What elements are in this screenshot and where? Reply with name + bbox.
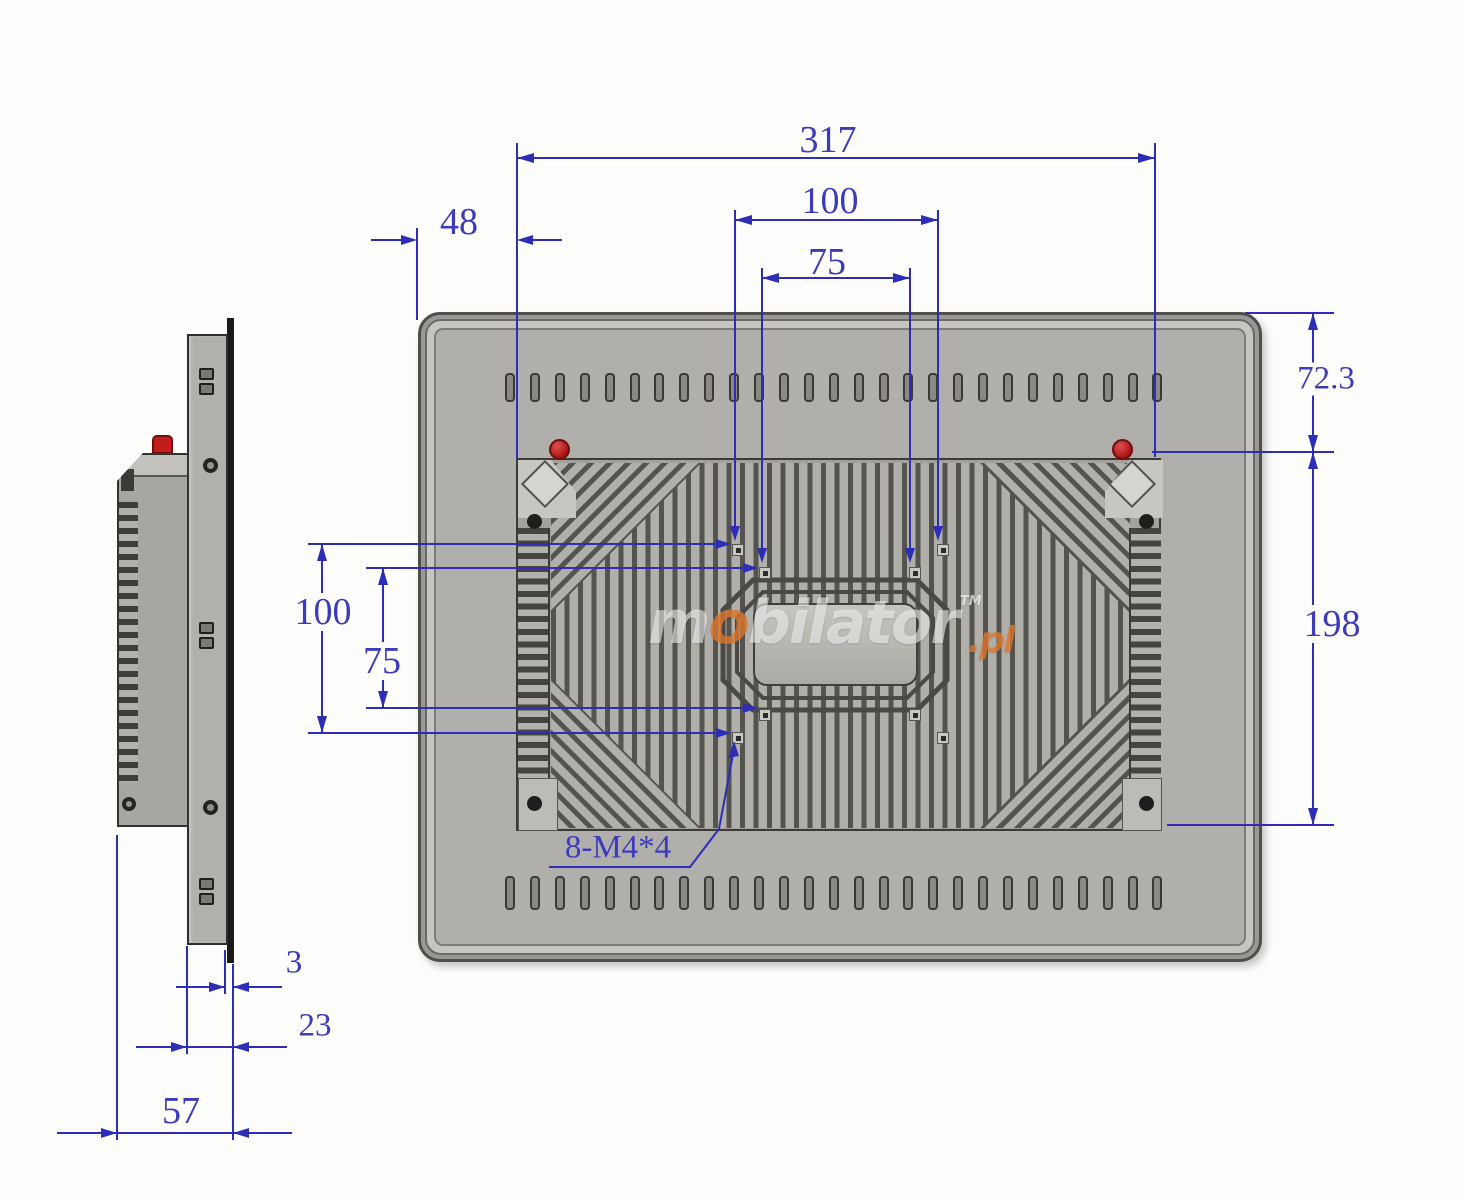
vesa-hole-100: [937, 732, 949, 744]
vent-slot: [630, 373, 640, 402]
dim-label-57: 57: [162, 1092, 200, 1130]
vent-slot: [779, 373, 789, 402]
mount-lug: [199, 893, 214, 905]
vesa-hole-75: [759, 567, 771, 579]
vent-slot: [928, 876, 938, 910]
vent-slot: [729, 373, 739, 402]
mount-lug: [199, 622, 214, 634]
dim-label-3: 3: [286, 947, 303, 980]
vent-slot: [605, 373, 615, 402]
vent-slot: [1003, 876, 1013, 910]
side-view-pc-body: [117, 453, 189, 827]
vent-slot: [953, 876, 963, 910]
vesa-hole-75: [909, 567, 921, 579]
mount-lug: [199, 383, 214, 395]
red-screw: [549, 439, 570, 460]
dim-label-72-3: 72.3: [1293, 363, 1359, 396]
vent-slot: [754, 373, 764, 402]
vent-slot: [1053, 876, 1063, 910]
vent-slot: [1078, 876, 1088, 910]
vent-slot: [829, 373, 839, 402]
heatsink-plate: [516, 458, 1161, 831]
vent-slot: [953, 373, 963, 402]
vent-slot: [679, 373, 689, 402]
vent-slot: [779, 876, 789, 910]
vent-slot: [1152, 876, 1162, 910]
body-screw-hole: [122, 797, 136, 811]
vent-slot: [879, 876, 889, 910]
dim-label-75-top: 75: [808, 243, 846, 281]
dim-label-75-left: 75: [359, 642, 405, 680]
vent-slot: [804, 876, 814, 910]
vent-slot: [555, 373, 565, 402]
vent-slot: [1128, 373, 1138, 402]
vent-slot: [1128, 876, 1138, 910]
vent-slot: [580, 876, 590, 910]
vent-slot: [1053, 373, 1063, 402]
vent-slot: [1103, 876, 1113, 910]
vent-slot: [605, 876, 615, 910]
vent-slot: [903, 373, 913, 402]
vent-slot: [654, 876, 664, 910]
dim-label-198: 198: [1300, 605, 1365, 643]
vent-slot: [1152, 373, 1162, 402]
vent-slot: [829, 876, 839, 910]
vent-slot: [530, 373, 540, 402]
vent-slot: [903, 876, 913, 910]
vent-slot: [530, 876, 540, 910]
mount-lug: [199, 637, 214, 649]
dim-label-100-top: 100: [802, 182, 859, 220]
mount-lug: [199, 368, 214, 380]
bezel-screw-hole: [203, 458, 218, 473]
dim-label-100-left: 100: [291, 593, 356, 631]
vent-slot: [1103, 373, 1113, 402]
vent-slot: [854, 373, 864, 402]
dim-label-23: 23: [299, 1010, 332, 1043]
vesa-center-plate: [753, 603, 918, 686]
vesa-hole-100: [937, 544, 949, 556]
body-heatsink-fins: [119, 502, 138, 782]
vent-slot: [1028, 373, 1038, 402]
vesa-hole-75: [759, 709, 771, 721]
vesa-hole-75: [909, 709, 921, 721]
vent-slot: [704, 373, 714, 402]
bezel-screw-hole: [203, 800, 218, 815]
vent-slot: [630, 876, 640, 910]
mount-lug: [199, 878, 214, 890]
vent-slot: [654, 373, 664, 402]
vent-slot: [978, 876, 988, 910]
power-button-side: [152, 435, 173, 454]
vesa-hole-100: [732, 544, 744, 556]
vent-slot: [679, 876, 689, 910]
dim-label-screws: 8-M4*4: [565, 832, 671, 865]
dim-label-317: 317: [800, 121, 857, 159]
red-screw: [1112, 439, 1133, 460]
vent-slot: [1003, 373, 1013, 402]
vent-slot: [505, 876, 515, 910]
vent-slot: [555, 876, 565, 910]
vent-slot: [1078, 373, 1088, 402]
vent-slot: [505, 373, 515, 402]
vent-slot: [1028, 876, 1038, 910]
vent-slot: [804, 373, 814, 402]
vent-slot: [580, 373, 590, 402]
vent-slot: [928, 373, 938, 402]
rear-case: [418, 312, 1262, 962]
vent-slot: [729, 876, 739, 910]
vent-slot: [879, 373, 889, 402]
body-connector: [121, 469, 134, 491]
vent-slot: [978, 373, 988, 402]
vent-slot: [754, 876, 764, 910]
vent-slot: [854, 876, 864, 910]
side-view-front-glass: [227, 318, 234, 963]
vent-slot: [704, 876, 714, 910]
dim-label-48: 48: [440, 203, 478, 241]
vesa-hole-100: [732, 732, 744, 744]
drawing-canvas: mobilatorTM.pl: [0, 0, 1463, 1200]
